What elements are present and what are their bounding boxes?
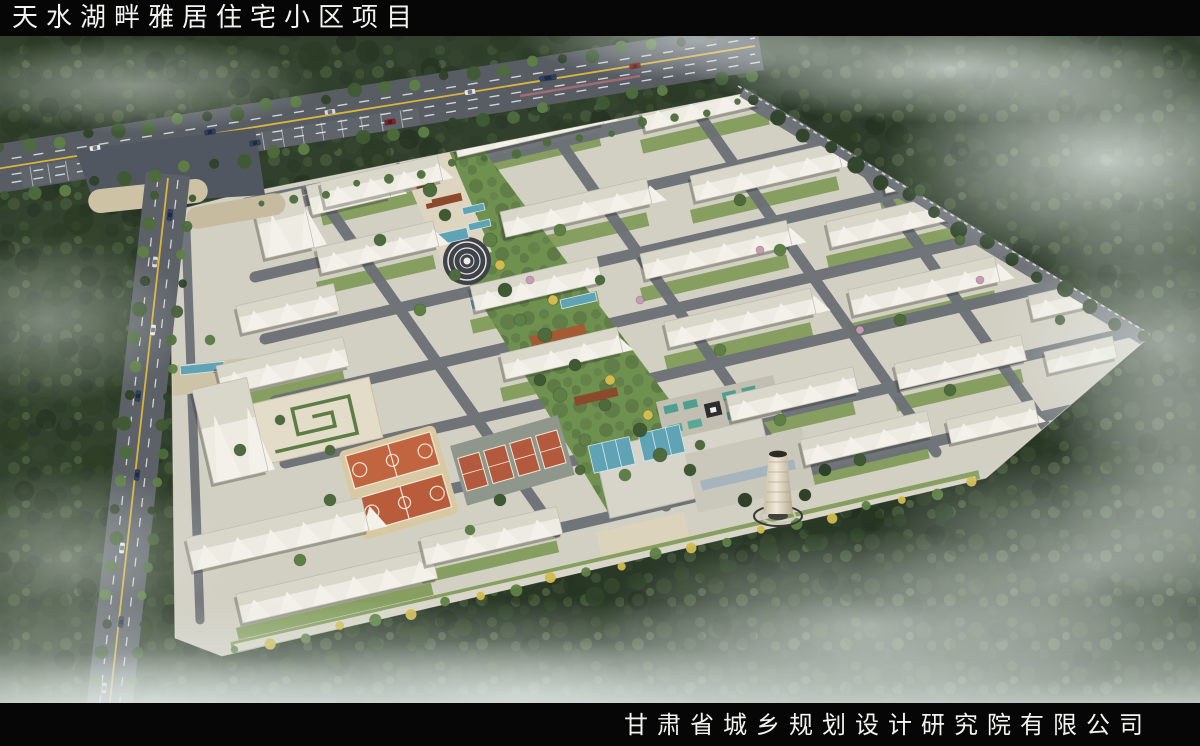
street-tree (418, 127, 429, 138)
tree (605, 375, 615, 385)
street-tree (608, 130, 615, 137)
street-tree (148, 169, 161, 182)
tree (695, 440, 705, 450)
street-tree (527, 56, 538, 67)
street-tree (510, 584, 522, 596)
street-tree (155, 419, 167, 431)
street-tree (467, 66, 481, 80)
street-tree (28, 186, 41, 199)
tree (325, 445, 335, 455)
tree (483, 233, 497, 247)
street-tree (825, 141, 837, 153)
street-tree (703, 110, 710, 117)
street-tree (387, 128, 400, 141)
tree (643, 410, 653, 420)
tree (894, 314, 906, 326)
tree (738, 493, 752, 507)
street-tree (59, 185, 71, 197)
street-tree (150, 191, 159, 200)
tree (633, 423, 647, 437)
tree (498, 283, 512, 297)
tree (856, 326, 864, 334)
tree (854, 454, 866, 466)
tree (294, 554, 306, 566)
street-tree (267, 145, 280, 158)
tree (538, 328, 552, 342)
tree (548, 295, 558, 305)
street-tree (497, 65, 509, 77)
tree (819, 464, 831, 476)
tree (595, 275, 605, 285)
street-tree (178, 279, 187, 288)
street-tree (512, 149, 522, 159)
street-tree (348, 83, 362, 97)
tree (575, 465, 585, 475)
street-tree (481, 155, 488, 162)
street-tree (181, 221, 192, 232)
street-tree (158, 449, 169, 460)
street-tree (289, 195, 298, 204)
tree (553, 388, 567, 402)
footer-bar: 甘肃省城乡规划设计研究院有限公司 (0, 703, 1200, 746)
tree (534, 374, 546, 386)
tree (275, 415, 285, 425)
tree (414, 304, 426, 316)
tree (234, 444, 246, 456)
tree (579, 434, 591, 446)
car (135, 390, 142, 402)
street-tree (378, 81, 391, 94)
street-tree (298, 144, 309, 155)
street-tree (581, 567, 591, 577)
street-tree (89, 176, 99, 186)
tree (774, 244, 786, 256)
street-tree (189, 195, 197, 203)
street-tree (448, 118, 458, 128)
tree (526, 276, 534, 284)
tree (554, 224, 566, 236)
title-bar: 天水湖畔雅居住宅小区项目 (0, 0, 1200, 36)
street-tree (476, 113, 490, 127)
street-tree (163, 393, 171, 401)
tree (495, 260, 505, 270)
tree (684, 464, 696, 476)
tree (636, 296, 644, 304)
architectural-rendering: 天水湖畔雅居住宅小区项目 甘肃省城乡规划设计研究院有限公司 (0, 0, 1200, 746)
street-tree (638, 117, 648, 127)
tree (324, 494, 336, 506)
tree (714, 344, 726, 356)
street-tree (439, 71, 449, 81)
street-tree (657, 85, 668, 96)
street-tree (537, 102, 548, 113)
site-plan-rendering (0, 0, 1200, 746)
tree (774, 414, 786, 426)
tree (465, 525, 475, 535)
tree (374, 234, 386, 246)
company-name: 甘肃省城乡规划设计研究院有限公司 (624, 711, 1152, 739)
street-tree (356, 130, 370, 144)
street-tree (543, 138, 552, 147)
street-tree (209, 159, 219, 169)
street-tree (507, 111, 519, 123)
street-tree (54, 137, 66, 149)
street-tree (120, 446, 133, 459)
street-tree (168, 364, 178, 374)
tree (205, 335, 215, 345)
tree (653, 448, 667, 462)
tree (514, 314, 526, 326)
street-tree (650, 548, 662, 560)
street-tree (862, 501, 871, 510)
street-tree (417, 170, 426, 179)
tree (734, 194, 746, 206)
street-tree (117, 171, 132, 186)
tree (976, 276, 984, 284)
project-title: 天水湖畔雅居住宅小区项目 (12, 3, 420, 33)
tree (569, 359, 581, 371)
car (167, 209, 174, 221)
street-tree (322, 191, 330, 199)
street-tree (626, 87, 638, 99)
street-tree (117, 416, 132, 431)
street-tree (142, 217, 155, 230)
street-tree (178, 160, 190, 172)
tree (494, 494, 506, 506)
street-tree (618, 562, 626, 570)
street-tree (176, 250, 186, 260)
street-tree (258, 201, 264, 207)
tree (599, 399, 611, 411)
street-tree (757, 526, 765, 534)
street-tree (770, 110, 786, 126)
street-tree (353, 180, 360, 187)
tree (439, 209, 451, 221)
street-tree (384, 174, 394, 184)
tree (756, 246, 764, 254)
street-tree (237, 154, 252, 169)
street-tree (568, 101, 577, 110)
street-tree (796, 129, 810, 143)
street-tree (596, 96, 610, 110)
tree (423, 183, 437, 197)
street-tree (409, 80, 420, 91)
street-tree (827, 513, 837, 523)
street-tree (847, 156, 864, 173)
street-tree (686, 543, 697, 554)
tree (619, 469, 631, 481)
street-tree (329, 142, 339, 152)
street-tree (476, 592, 484, 600)
tree (449, 269, 461, 281)
street-tree (545, 572, 556, 583)
street-tree (23, 138, 36, 151)
street-tree (0, 191, 9, 200)
street-tree (125, 390, 135, 400)
street-tree (688, 84, 697, 93)
street-tree (670, 113, 678, 121)
street-tree (448, 159, 456, 167)
street-tree (321, 95, 331, 105)
tree (944, 384, 956, 396)
street-tree (576, 134, 584, 142)
tree (799, 489, 811, 501)
